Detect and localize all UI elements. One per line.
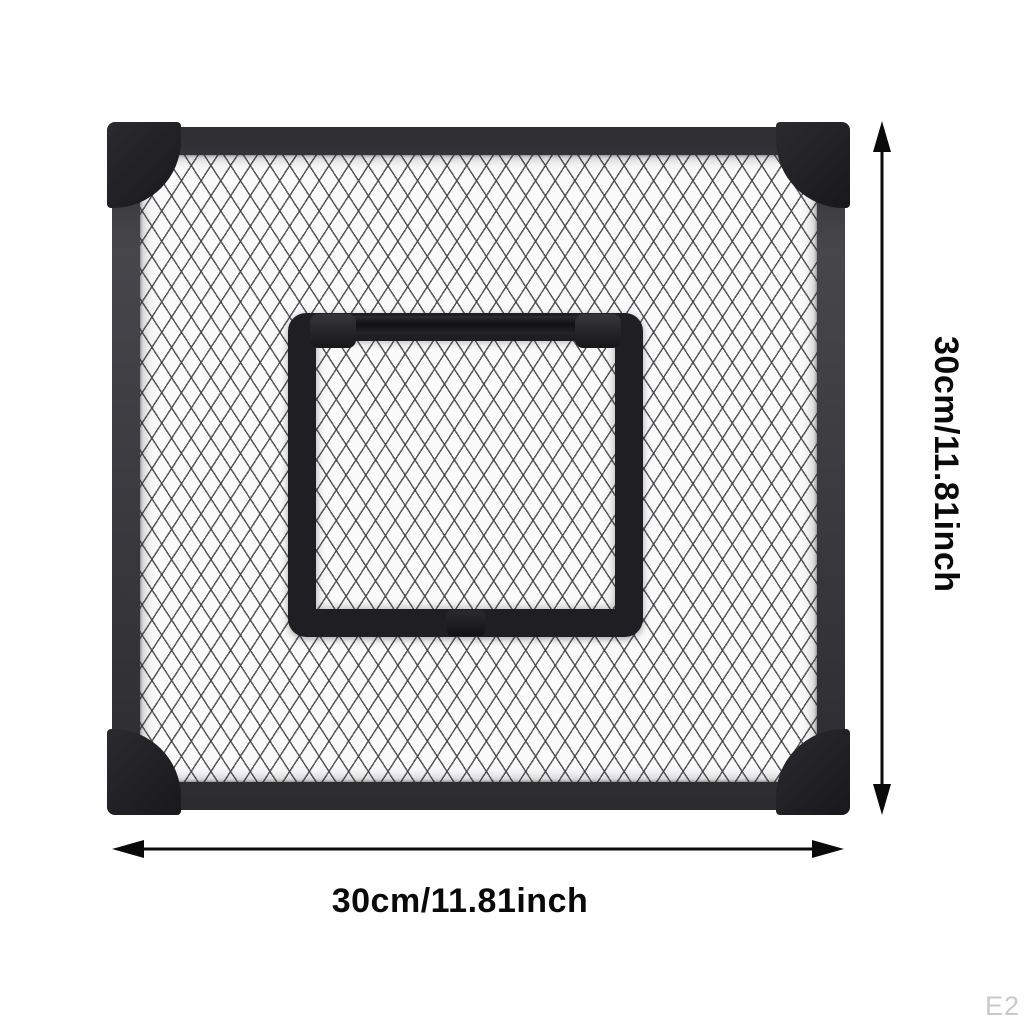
screen-frame	[112, 127, 845, 810]
horizontal-dimension-arrow-icon	[108, 835, 848, 863]
flap-door	[288, 313, 643, 637]
vertical-dimension-arrow-icon	[868, 118, 896, 818]
width-dimension-label: 30cm/11.81inch	[332, 882, 589, 921]
flap-latch	[447, 610, 485, 636]
watermark-text: E2	[985, 991, 1020, 1022]
flap-mesh	[316, 341, 615, 609]
flap-hinge-tab-right	[575, 314, 621, 348]
flap-hinge-bar	[324, 316, 607, 334]
product-dimension-image: 30cm/11.81inch 30cm/11.81inch E2	[0, 0, 1024, 1024]
flap-hinge-tab-left	[310, 314, 356, 348]
height-dimension-label: 30cm/11.81inch	[926, 336, 965, 593]
